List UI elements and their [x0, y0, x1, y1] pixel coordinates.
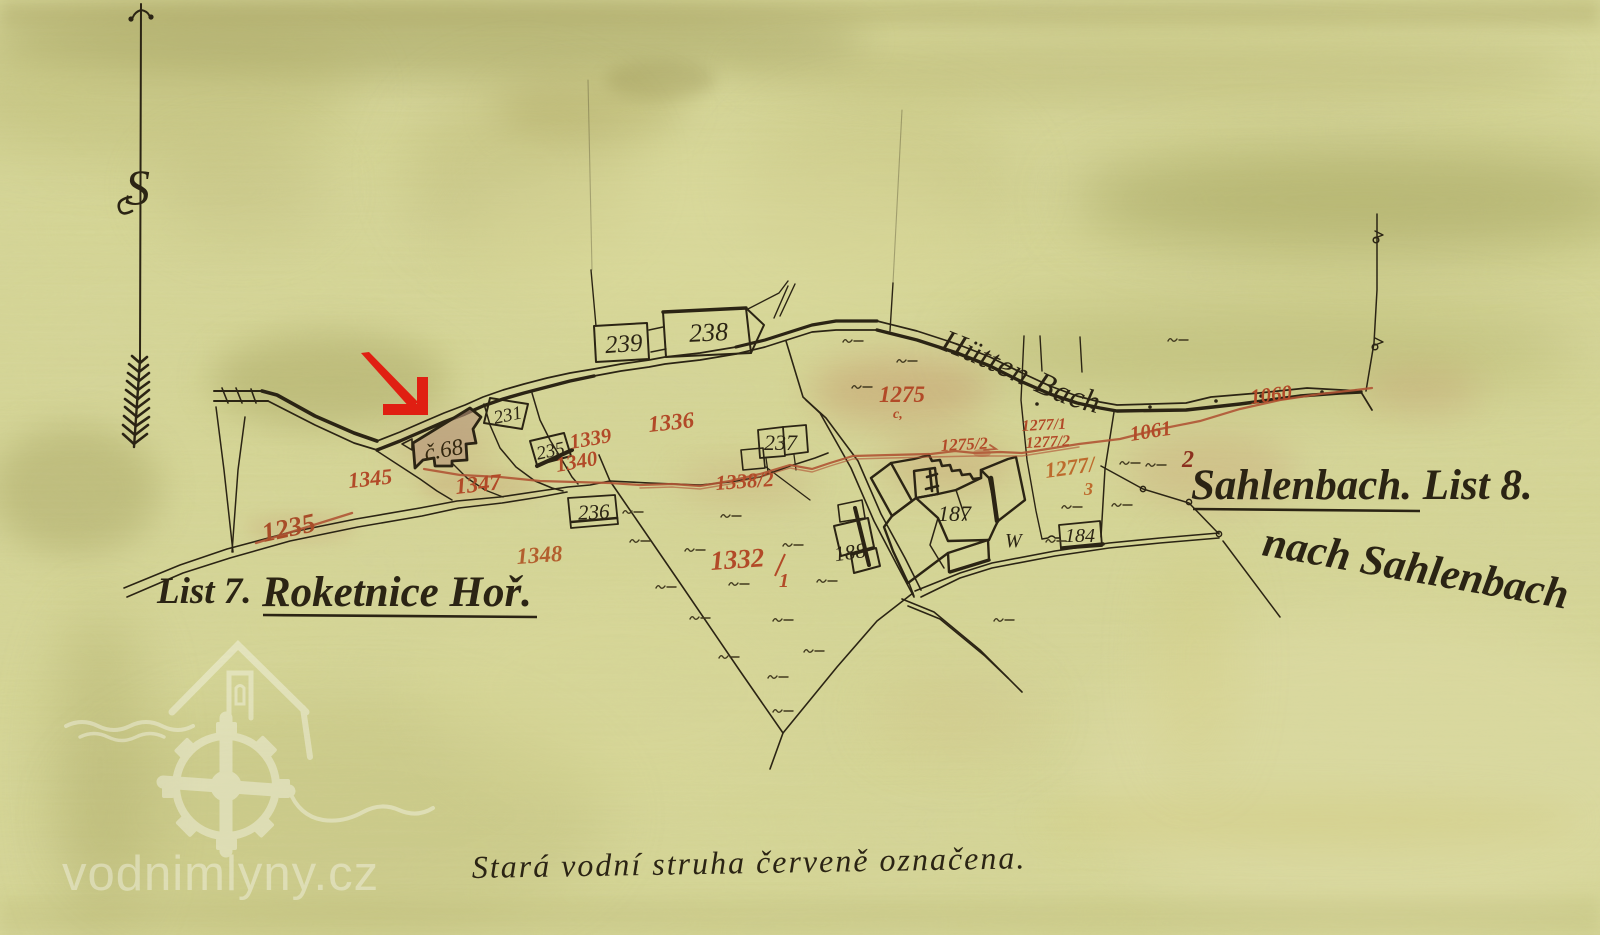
svg-text:vodnimlyny.cz: vodnimlyny.cz	[62, 847, 379, 901]
svg-text:237: 237	[764, 430, 798, 455]
svg-text:List 7.: List 7.	[156, 571, 252, 612]
svg-text:1336: 1336	[647, 407, 696, 437]
svg-text:188: 188	[833, 538, 868, 566]
svg-text:1277/1: 1277/1	[1021, 416, 1066, 435]
svg-text:187: 187	[938, 501, 972, 526]
svg-text:S: S	[125, 159, 150, 215]
svg-text:W: W	[1005, 530, 1024, 552]
svg-text:1: 1	[779, 570, 789, 592]
svg-text:184: 184	[1065, 525, 1095, 547]
svg-text:3: 3	[1083, 479, 1093, 499]
svg-text:1277/2: 1277/2	[1025, 433, 1070, 452]
svg-text:Roketnice Hoř.: Roketnice Hoř.	[261, 569, 532, 616]
svg-text:236: 236	[577, 499, 610, 525]
svg-text:238: 238	[688, 317, 728, 348]
svg-text:1347: 1347	[454, 469, 504, 499]
svg-text:1348: 1348	[516, 541, 564, 569]
svg-text:239: 239	[604, 329, 644, 359]
svg-text:1345: 1345	[347, 464, 393, 493]
svg-text:2: 2	[1181, 447, 1194, 473]
svg-text:1338/2: 1338/2	[715, 467, 775, 495]
svg-text:1332: 1332	[709, 542, 765, 576]
svg-text:Sahlenbach. List 8.: Sahlenbach. List 8.	[1191, 462, 1533, 509]
svg-text:1275/2: 1275/2	[940, 434, 989, 455]
svg-text:1275: 1275	[879, 382, 925, 407]
svg-text:1060: 1060	[1249, 380, 1294, 409]
svg-text:c,: c,	[893, 407, 903, 422]
